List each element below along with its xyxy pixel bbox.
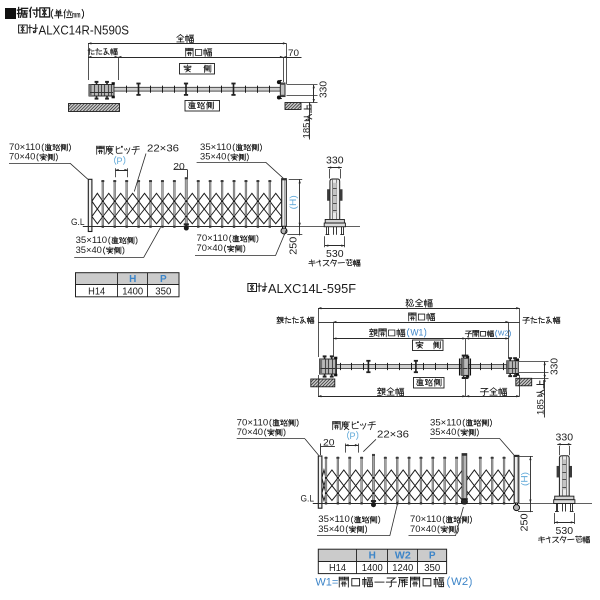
svg-text:35×40: 35×40 — [318, 524, 344, 535]
svg-text:P: P — [160, 274, 167, 285]
svg-text:W1: W1 — [410, 327, 423, 337]
svg-text:350: 350 — [424, 563, 440, 574]
svg-text:250: 250 — [519, 513, 531, 531]
svg-text:250: 250 — [288, 237, 300, 255]
svg-text:mm: mm — [72, 11, 81, 20]
svg-text:H: H — [369, 551, 376, 562]
svg-text:G.L: G.L — [71, 217, 85, 228]
svg-text:1400: 1400 — [122, 286, 143, 297]
svg-text:(H): (H) — [519, 472, 530, 486]
svg-text:(H): (H) — [288, 195, 299, 209]
svg-text:ALXC14L-595F: ALXC14L-595F — [268, 281, 356, 296]
svg-text:H: H — [129, 274, 136, 285]
svg-text:20: 20 — [323, 438, 335, 449]
svg-text:70×40: 70×40 — [410, 524, 436, 535]
svg-text:70×40: 70×40 — [9, 152, 35, 163]
svg-text:H14: H14 — [88, 286, 105, 297]
svg-text:530: 530 — [326, 248, 344, 260]
svg-text:20: 20 — [173, 161, 185, 172]
svg-text:70×40: 70×40 — [237, 427, 263, 438]
svg-text:ALXC14R-N590S: ALXC14R-N590S — [39, 22, 130, 37]
svg-text:330: 330 — [549, 358, 560, 375]
svg-text:330: 330 — [318, 81, 329, 98]
svg-text:330: 330 — [326, 155, 344, 167]
svg-text:70: 70 — [288, 48, 299, 59]
svg-text:185: 185 — [301, 123, 312, 139]
svg-text:330: 330 — [556, 431, 574, 443]
svg-text:70×40: 70×40 — [197, 243, 223, 254]
svg-text:185: 185 — [536, 399, 547, 415]
svg-text:W2: W2 — [395, 551, 411, 562]
svg-text:530: 530 — [556, 525, 574, 537]
svg-text:1240: 1240 — [392, 563, 413, 574]
svg-text:H14: H14 — [329, 563, 346, 574]
svg-text:1400: 1400 — [362, 563, 383, 574]
svg-text:35×40: 35×40 — [200, 152, 226, 163]
svg-text:350: 350 — [155, 286, 171, 297]
svg-text:P: P — [429, 551, 436, 562]
svg-text:22×36: 22×36 — [147, 144, 179, 155]
svg-text:P: P — [349, 431, 355, 441]
svg-text:P: P — [116, 156, 122, 166]
svg-text:22×36: 22×36 — [377, 429, 409, 440]
svg-text:W2: W2 — [451, 576, 468, 588]
svg-text:G.L: G.L — [301, 494, 315, 505]
svg-text:W2: W2 — [498, 331, 509, 338]
svg-text:W1=: W1= — [315, 576, 338, 588]
svg-text:35×40: 35×40 — [76, 245, 102, 256]
svg-text:35×40: 35×40 — [430, 427, 456, 438]
